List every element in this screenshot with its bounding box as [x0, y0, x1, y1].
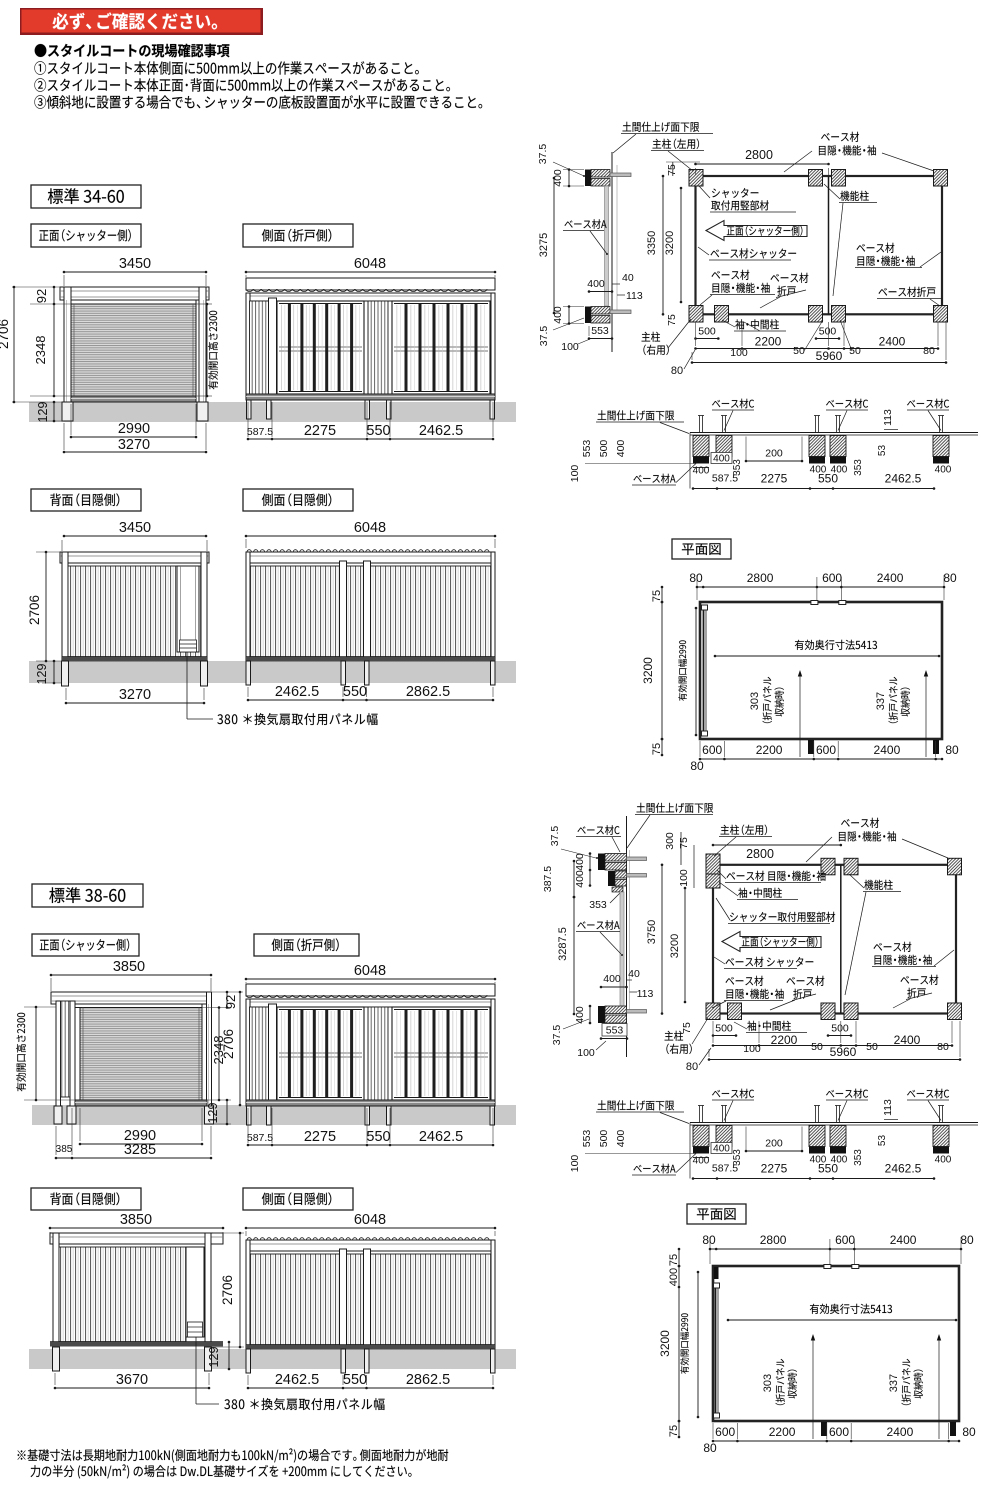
svg-text:553: 553 — [591, 325, 609, 337]
svg-text:129: 129 — [35, 664, 49, 685]
svg-text:3200: 3200 — [664, 231, 676, 255]
svg-text:6048: 6048 — [354, 520, 386, 536]
svg-text:80: 80 — [702, 1233, 716, 1247]
svg-text:80: 80 — [943, 571, 957, 585]
svg-text:2706: 2706 — [0, 319, 11, 349]
svg-text:80: 80 — [690, 759, 704, 773]
svg-text:387.5: 387.5 — [542, 866, 554, 892]
svg-text:129: 129 — [207, 1347, 221, 1368]
svg-text:550: 550 — [366, 423, 390, 439]
svg-text:80: 80 — [671, 365, 683, 377]
svg-text:40: 40 — [628, 968, 640, 980]
svg-text:3270: 3270 — [118, 437, 150, 453]
svg-text:75: 75 — [681, 1022, 693, 1034]
svg-text:600: 600 — [702, 743, 722, 757]
svg-text:3350: 3350 — [646, 231, 658, 255]
svg-text:550: 550 — [366, 1129, 390, 1145]
svg-text:53: 53 — [877, 445, 888, 457]
svg-text:2800: 2800 — [746, 847, 774, 861]
svg-text:2400: 2400 — [874, 743, 901, 757]
svg-text:50: 50 — [793, 345, 805, 357]
svg-text:75: 75 — [678, 837, 690, 849]
svg-text:3200: 3200 — [658, 1330, 672, 1357]
svg-text:400: 400 — [935, 465, 952, 476]
svg-text:3450: 3450 — [119, 256, 151, 272]
svg-text:3285: 3285 — [124, 1142, 156, 1158]
svg-text:400: 400 — [615, 1130, 627, 1148]
svg-text:3200: 3200 — [641, 657, 655, 684]
svg-text:2462.5: 2462.5 — [275, 684, 319, 700]
svg-text:587.5: 587.5 — [247, 1132, 273, 1144]
svg-text:2275: 2275 — [761, 1162, 788, 1176]
svg-text:3200: 3200 — [669, 934, 681, 958]
svg-text:300: 300 — [664, 832, 676, 850]
svg-text:2400: 2400 — [890, 1233, 917, 1247]
svg-text:400: 400 — [603, 973, 621, 985]
svg-text:2800: 2800 — [747, 571, 774, 585]
svg-text:80: 80 — [689, 571, 703, 585]
svg-text:5960: 5960 — [830, 1045, 857, 1059]
svg-text:400: 400 — [615, 440, 627, 458]
svg-text:337: 337 — [875, 692, 887, 710]
svg-text:500: 500 — [598, 1130, 610, 1148]
svg-text:3450: 3450 — [119, 520, 151, 536]
svg-text:337: 337 — [888, 1374, 900, 1392]
svg-text:587.5: 587.5 — [712, 1163, 738, 1175]
svg-text:200: 200 — [765, 448, 783, 460]
svg-text:75: 75 — [651, 743, 663, 755]
svg-text:2275: 2275 — [304, 423, 336, 439]
svg-text:587.5: 587.5 — [712, 473, 738, 485]
svg-text:50: 50 — [811, 1041, 823, 1053]
svg-text:587.5: 587.5 — [247, 426, 273, 438]
svg-text:40: 40 — [622, 272, 634, 284]
svg-text:600: 600 — [835, 1233, 855, 1247]
svg-text:37.5: 37.5 — [549, 826, 561, 847]
svg-text:550: 550 — [818, 1162, 838, 1176]
svg-text:353: 353 — [589, 899, 607, 911]
svg-text:2200: 2200 — [771, 1033, 798, 1047]
svg-text:50: 50 — [849, 345, 861, 357]
svg-text:113: 113 — [882, 1099, 894, 1116]
svg-text:75: 75 — [651, 590, 663, 602]
svg-text:3670: 3670 — [116, 1372, 148, 1388]
svg-text:129: 129 — [36, 402, 50, 423]
svg-text:80: 80 — [923, 345, 935, 357]
svg-text:2462.5: 2462.5 — [275, 1372, 319, 1388]
svg-text:2400: 2400 — [877, 571, 904, 585]
svg-text:400: 400 — [668, 1268, 680, 1286]
svg-text:80: 80 — [945, 743, 959, 757]
svg-text:550: 550 — [343, 684, 367, 700]
svg-text:2400: 2400 — [879, 335, 906, 349]
svg-text:353: 353 — [853, 459, 864, 476]
svg-text:75: 75 — [666, 164, 678, 176]
svg-text:5960: 5960 — [816, 349, 843, 363]
svg-text:100: 100 — [561, 341, 579, 353]
svg-text:400: 400 — [574, 853, 586, 871]
svg-text:100: 100 — [577, 1047, 595, 1059]
svg-text:2462.5: 2462.5 — [885, 472, 922, 486]
svg-text:2800: 2800 — [760, 1233, 787, 1247]
svg-text:600: 600 — [715, 1425, 735, 1439]
svg-text:353: 353 — [853, 1149, 864, 1166]
svg-text:50: 50 — [866, 1041, 878, 1053]
svg-text:550: 550 — [818, 472, 838, 486]
svg-text:80: 80 — [686, 1061, 698, 1073]
svg-text:2348: 2348 — [33, 336, 48, 365]
svg-text:80: 80 — [960, 1233, 974, 1247]
svg-text:92: 92 — [223, 995, 238, 1009]
svg-text:2400: 2400 — [894, 1033, 921, 1047]
svg-text:53: 53 — [877, 1135, 888, 1147]
svg-text:113: 113 — [882, 409, 894, 426]
svg-text:2462.5: 2462.5 — [885, 1162, 922, 1176]
svg-text:2862.5: 2862.5 — [406, 1372, 450, 1388]
svg-text:500: 500 — [598, 440, 610, 458]
svg-text:200: 200 — [765, 1138, 783, 1150]
svg-text:80: 80 — [937, 1041, 949, 1053]
svg-text:400: 400 — [713, 454, 730, 465]
svg-text:400: 400 — [713, 1144, 730, 1155]
svg-text:6048: 6048 — [354, 256, 386, 272]
svg-text:385: 385 — [56, 1144, 73, 1155]
svg-text:6048: 6048 — [354, 963, 386, 979]
svg-text:500: 500 — [819, 326, 837, 338]
svg-text:3750: 3750 — [646, 920, 658, 944]
svg-text:129: 129 — [206, 1103, 220, 1124]
svg-text:100: 100 — [743, 1043, 761, 1055]
svg-text:553: 553 — [581, 1130, 593, 1148]
svg-text:600: 600 — [822, 571, 842, 585]
svg-text:37.5: 37.5 — [537, 144, 549, 165]
svg-text:2800: 2800 — [745, 148, 773, 162]
svg-text:37.5: 37.5 — [538, 326, 550, 347]
svg-text:2400: 2400 — [887, 1425, 914, 1439]
svg-text:2462.5: 2462.5 — [419, 1129, 463, 1145]
svg-text:2200: 2200 — [756, 743, 783, 757]
svg-text:3850: 3850 — [120, 1212, 152, 1228]
svg-text:2275: 2275 — [761, 472, 788, 486]
svg-text:2200: 2200 — [769, 1425, 796, 1439]
svg-text:100: 100 — [730, 347, 748, 359]
svg-text:2706: 2706 — [221, 1029, 236, 1059]
svg-text:500: 500 — [831, 1023, 849, 1035]
svg-text:100: 100 — [678, 869, 690, 887]
svg-text:303: 303 — [749, 692, 761, 710]
svg-text:113: 113 — [637, 988, 654, 1000]
svg-text:400: 400 — [574, 870, 586, 888]
svg-text:553: 553 — [606, 1025, 624, 1037]
svg-text:100: 100 — [569, 1155, 581, 1173]
svg-text:75: 75 — [666, 314, 678, 326]
svg-text:600: 600 — [829, 1425, 849, 1439]
svg-text:303: 303 — [762, 1374, 774, 1392]
svg-text:400: 400 — [587, 278, 605, 290]
svg-text:3270: 3270 — [119, 687, 151, 703]
svg-text:2862.5: 2862.5 — [406, 684, 450, 700]
svg-text:113: 113 — [626, 290, 643, 302]
svg-text:2706: 2706 — [27, 595, 42, 625]
svg-text:2706: 2706 — [220, 1275, 235, 1305]
svg-text:75: 75 — [668, 1254, 680, 1266]
svg-text:3850: 3850 — [113, 959, 145, 975]
svg-text:75: 75 — [668, 1425, 680, 1437]
svg-text:2462.5: 2462.5 — [419, 423, 463, 439]
svg-text:553: 553 — [581, 440, 593, 458]
svg-text:2200: 2200 — [755, 335, 782, 349]
svg-text:500: 500 — [698, 326, 716, 338]
svg-text:400: 400 — [552, 306, 564, 324]
svg-text:92: 92 — [34, 289, 49, 303]
svg-text:600: 600 — [816, 743, 836, 757]
svg-text:2275: 2275 — [304, 1129, 336, 1145]
svg-text:550: 550 — [343, 1372, 367, 1388]
svg-text:37.5: 37.5 — [551, 1025, 563, 1046]
svg-text:80: 80 — [962, 1425, 976, 1439]
svg-text:6048: 6048 — [354, 1212, 386, 1228]
svg-text:400: 400 — [935, 1155, 952, 1166]
svg-text:3275: 3275 — [538, 233, 550, 257]
svg-text:3287.5: 3287.5 — [557, 927, 569, 961]
svg-text:500: 500 — [715, 1023, 733, 1035]
svg-text:2990: 2990 — [118, 421, 150, 437]
svg-text:100: 100 — [569, 465, 581, 483]
svg-text:80: 80 — [703, 1441, 717, 1455]
